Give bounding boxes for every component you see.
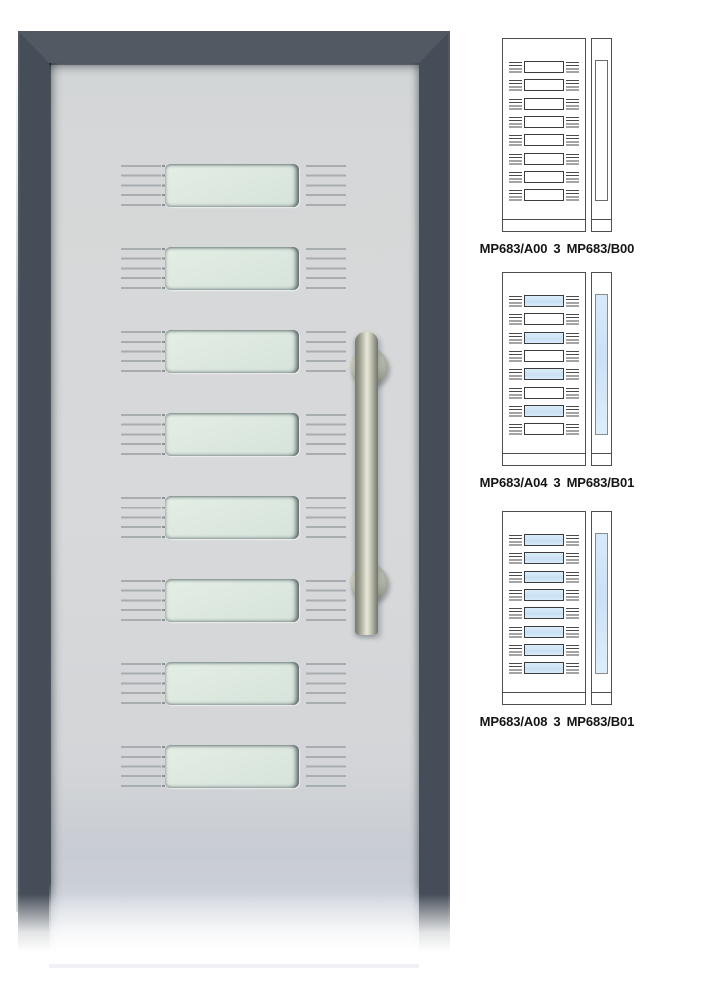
bottom-rail-line — [591, 453, 612, 454]
slot-glazed — [524, 534, 564, 546]
variant-slot-row — [509, 189, 579, 201]
variant-slot-row — [509, 313, 579, 325]
door-leaf-panel — [49, 63, 419, 962]
hatch-left — [509, 333, 522, 344]
variant-slot-row — [509, 626, 579, 638]
slot-glazed — [524, 332, 564, 344]
slot-glazed — [524, 405, 564, 417]
variant-item: MP683/A043MP683/B01 — [502, 272, 662, 502]
sidelight-glass-clear — [595, 60, 608, 201]
variant-slot-row — [509, 61, 579, 73]
hatch-right — [566, 117, 579, 128]
hatch-left — [509, 80, 522, 91]
slot-glazed — [524, 644, 564, 656]
variant-slot-row — [509, 552, 579, 564]
variant-slot-row — [509, 534, 579, 546]
slot-clear — [524, 98, 564, 110]
hatch-right — [566, 154, 579, 165]
hatch-left — [509, 117, 522, 128]
glass-slot — [165, 745, 299, 788]
glass-slot-row — [49, 745, 419, 788]
variant-sidelight-diagram — [591, 38, 612, 232]
slot-clear — [524, 116, 564, 128]
variant-slot-row — [509, 423, 579, 435]
variant-item: MP683/A003MP683/B00 — [502, 38, 662, 268]
slot-clear — [524, 350, 564, 362]
hatch-right — [566, 296, 579, 307]
grille-right — [306, 165, 346, 206]
hatch-right — [566, 553, 579, 564]
slot-clear — [524, 189, 564, 201]
variant-door-diagram — [502, 38, 586, 232]
slot-glazed — [524, 589, 564, 601]
variant-slot-row — [509, 662, 579, 674]
door-pull-handle — [355, 332, 378, 635]
glass-slot-row — [49, 247, 419, 290]
grille-left — [121, 248, 161, 289]
hatch-left — [509, 553, 522, 564]
hatch-right — [566, 608, 579, 619]
hatch-left — [509, 388, 522, 399]
variant-code-a: MP683/A04 — [480, 475, 548, 490]
glass-slot — [165, 496, 299, 539]
slot-clear — [524, 313, 564, 325]
grille-right — [306, 663, 346, 704]
hatch-right — [566, 369, 579, 380]
variant-separator: 3 — [553, 241, 560, 256]
bottom-rail-line — [502, 453, 586, 454]
slot-clear — [524, 171, 564, 183]
hatch-left — [509, 296, 522, 307]
hatch-left — [509, 627, 522, 638]
variant-slot-row — [509, 79, 579, 91]
hatch-right — [566, 351, 579, 362]
hatch-right — [566, 190, 579, 201]
hatch-right — [566, 99, 579, 110]
variant-label: MP683/A083MP683/B01 — [457, 714, 657, 729]
glass-slot — [165, 247, 299, 290]
hatch-left — [509, 645, 522, 656]
bottom-rail-line — [591, 692, 612, 693]
hatch-right — [566, 388, 579, 399]
grille-left — [121, 331, 161, 372]
hatch-left — [509, 62, 522, 73]
variant-door-diagram — [502, 272, 586, 466]
hatch-right — [566, 80, 579, 91]
hatch-left — [509, 590, 522, 601]
sidelight-glass-glazed — [595, 533, 608, 674]
glass-slot — [165, 330, 299, 373]
bottom-rail-line — [591, 219, 612, 220]
variant-slot-row — [509, 589, 579, 601]
variant-code-a: MP683/A08 — [480, 714, 548, 729]
hatch-right — [566, 333, 579, 344]
hatch-right — [566, 535, 579, 546]
variant-slot-row — [509, 405, 579, 417]
hatch-left — [509, 572, 522, 583]
grille-right — [306, 497, 346, 538]
hatch-left — [509, 608, 522, 619]
slot-glazed — [524, 607, 564, 619]
hatch-right — [566, 62, 579, 73]
variant-separator: 3 — [553, 475, 560, 490]
variant-slot-row — [509, 134, 579, 146]
glass-slot — [165, 413, 299, 456]
variant-slot-row — [509, 295, 579, 307]
grille-left — [121, 165, 161, 206]
variant-separator: 3 — [553, 714, 560, 729]
grille-right — [306, 414, 346, 455]
hatch-left — [509, 314, 522, 325]
variant-slot-row — [509, 153, 579, 165]
variant-slot-row — [509, 332, 579, 344]
variant-code-b: MP683/B00 — [567, 241, 635, 256]
slot-clear — [524, 153, 564, 165]
hatch-left — [509, 424, 522, 435]
bottom-rail-line — [502, 692, 586, 693]
grille-right — [306, 746, 346, 787]
hatch-left — [509, 535, 522, 546]
hatch-right — [566, 406, 579, 417]
grille-right — [306, 248, 346, 289]
variant-slot-row — [509, 116, 579, 128]
variant-slot-row — [509, 571, 579, 583]
hatch-right — [566, 424, 579, 435]
slot-clear — [524, 387, 564, 399]
variant-door-diagram — [502, 511, 586, 705]
slot-glazed — [524, 626, 564, 638]
hatch-left — [509, 351, 522, 362]
grille-right — [306, 580, 346, 621]
glass-slot — [165, 164, 299, 207]
grille-left — [121, 497, 161, 538]
hatch-left — [509, 99, 522, 110]
main-door-image — [20, 33, 448, 962]
sidelight-glass-glazed — [595, 294, 608, 435]
grille-left — [121, 663, 161, 704]
bottom-rail-line — [502, 219, 586, 220]
variant-slot-row — [509, 368, 579, 380]
hatch-right — [566, 627, 579, 638]
variant-slot-row — [509, 98, 579, 110]
variant-code-a: MP683/A00 — [480, 241, 548, 256]
grille-left — [121, 414, 161, 455]
hatch-right — [566, 572, 579, 583]
variant-sidelight-diagram — [591, 272, 612, 466]
slot-clear — [524, 79, 564, 91]
variant-label: MP683/A043MP683/B01 — [457, 475, 657, 490]
slot-glazed — [524, 571, 564, 583]
catalog-page: MP683/A003MP683/B00MP683/A043MP683/B01MP… — [0, 0, 711, 1000]
glass-slot — [165, 662, 299, 705]
variant-code-b: MP683/B01 — [567, 475, 635, 490]
hatch-right — [566, 135, 579, 146]
glass-slot-row — [49, 164, 419, 207]
variant-slot-row — [509, 350, 579, 362]
slot-glazed — [524, 295, 564, 307]
hatch-left — [509, 406, 522, 417]
hatch-left — [509, 369, 522, 380]
hatch-left — [509, 663, 522, 674]
variant-code-b: MP683/B01 — [567, 714, 635, 729]
grille-right — [306, 331, 346, 372]
hatch-left — [509, 154, 522, 165]
hatch-right — [566, 314, 579, 325]
variant-slot-row — [509, 387, 579, 399]
hatch-right — [566, 663, 579, 674]
grille-left — [121, 746, 161, 787]
hatch-right — [566, 590, 579, 601]
slot-clear — [524, 423, 564, 435]
variant-slot-row — [509, 607, 579, 619]
variant-sidelight-diagram — [591, 511, 612, 705]
slot-glazed — [524, 662, 564, 674]
hatch-left — [509, 135, 522, 146]
variant-slot-row — [509, 171, 579, 183]
bottom-fade — [14, 894, 454, 964]
glass-slot-row — [49, 662, 419, 705]
hatch-left — [509, 172, 522, 183]
slot-glazed — [524, 552, 564, 564]
variant-item: MP683/A083MP683/B01 — [502, 511, 662, 741]
hatch-left — [509, 190, 522, 201]
hatch-right — [566, 645, 579, 656]
slot-clear — [524, 61, 564, 73]
variant-slot-row — [509, 644, 579, 656]
slot-clear — [524, 134, 564, 146]
variant-label: MP683/A003MP683/B00 — [457, 241, 657, 256]
slot-glazed — [524, 368, 564, 380]
hatch-right — [566, 172, 579, 183]
glass-slot — [165, 579, 299, 622]
grille-left — [121, 580, 161, 621]
